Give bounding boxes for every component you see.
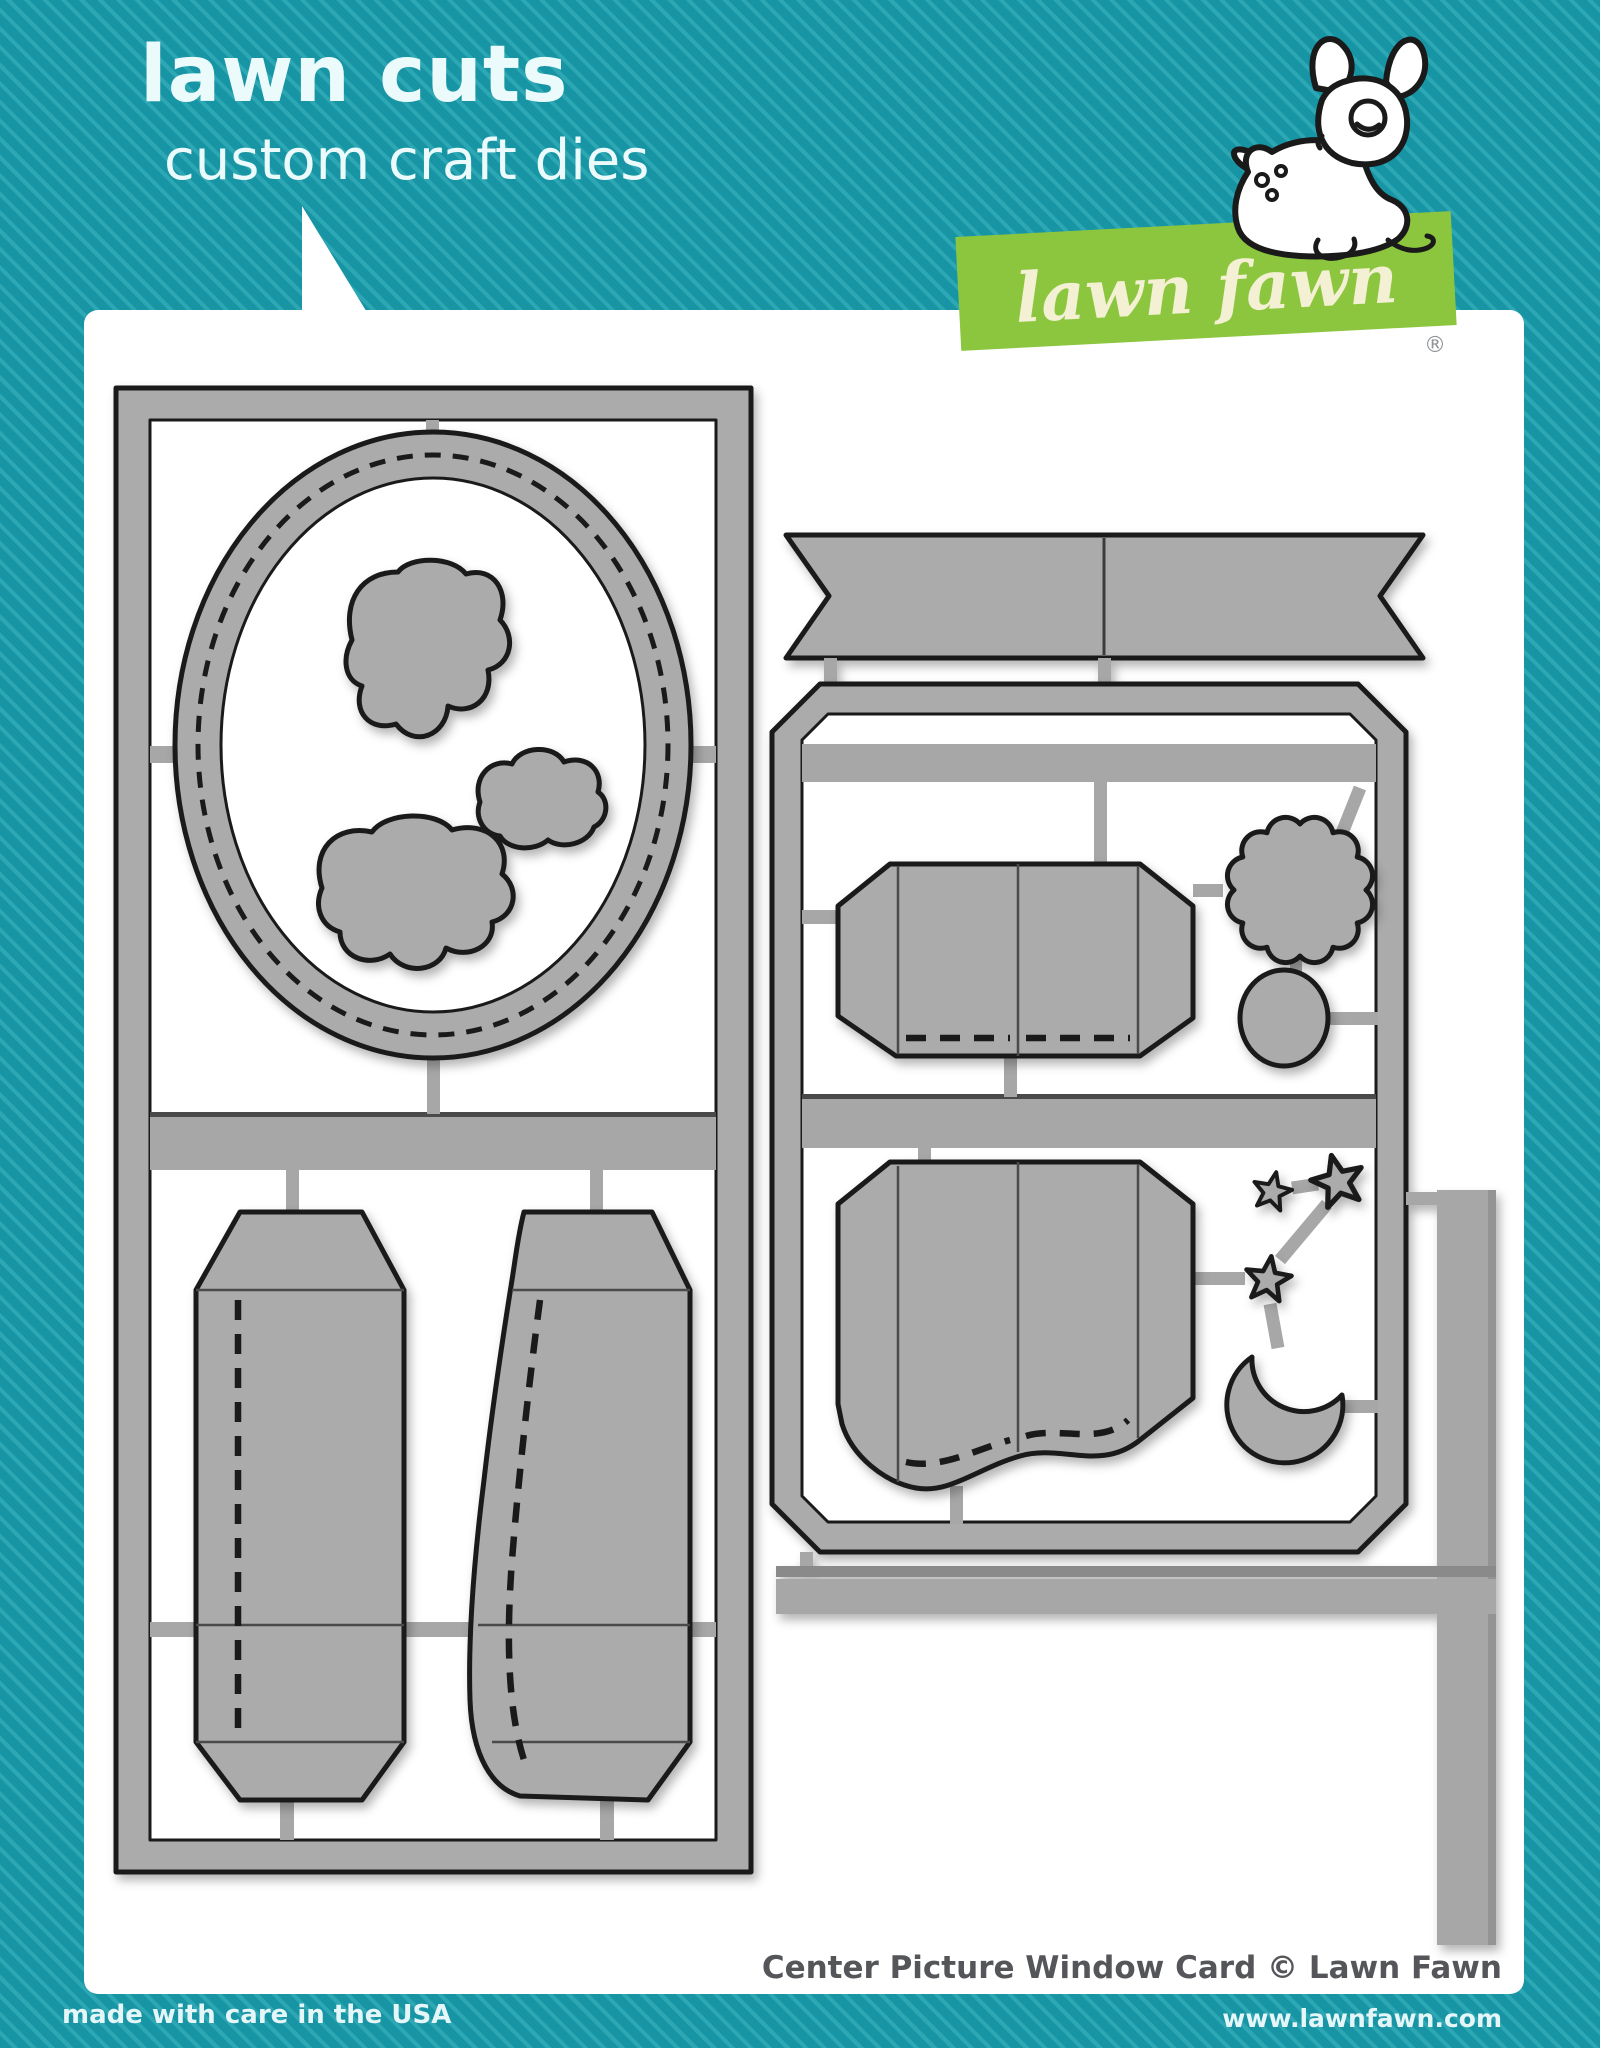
picture-window-card-die — [838, 864, 1193, 1056]
website-label: www.lawnfawn.com — [1222, 2004, 1502, 2033]
lawn-fawn-logo: lawn fawn ® — [955, 39, 1456, 358]
page-title: lawn cuts — [140, 30, 569, 120]
speech-bubble-tail — [302, 206, 368, 314]
product-name-label: Center Picture Window Card © Lawn Fawn — [762, 1950, 1502, 1986]
circle-die — [1240, 970, 1328, 1066]
cloud-small-icon — [478, 749, 606, 847]
product-image: lawn fawn ® lawn cuts custom craft dies — [0, 0, 1600, 2048]
page-subtitle: custom craft dies — [164, 128, 649, 193]
cloud-medium-icon — [319, 816, 514, 968]
picture-window-card-wavy-die — [838, 1162, 1193, 1489]
die-artwork: lawn fawn ® — [0, 0, 1600, 2048]
registered-mark: ® — [1424, 333, 1446, 358]
made-in-label: made with care in the USA — [62, 2000, 451, 2030]
fawn-logo-icon — [1234, 39, 1433, 258]
tall-card-base-die — [196, 1212, 404, 1800]
starburst-circle-die — [1227, 817, 1372, 962]
